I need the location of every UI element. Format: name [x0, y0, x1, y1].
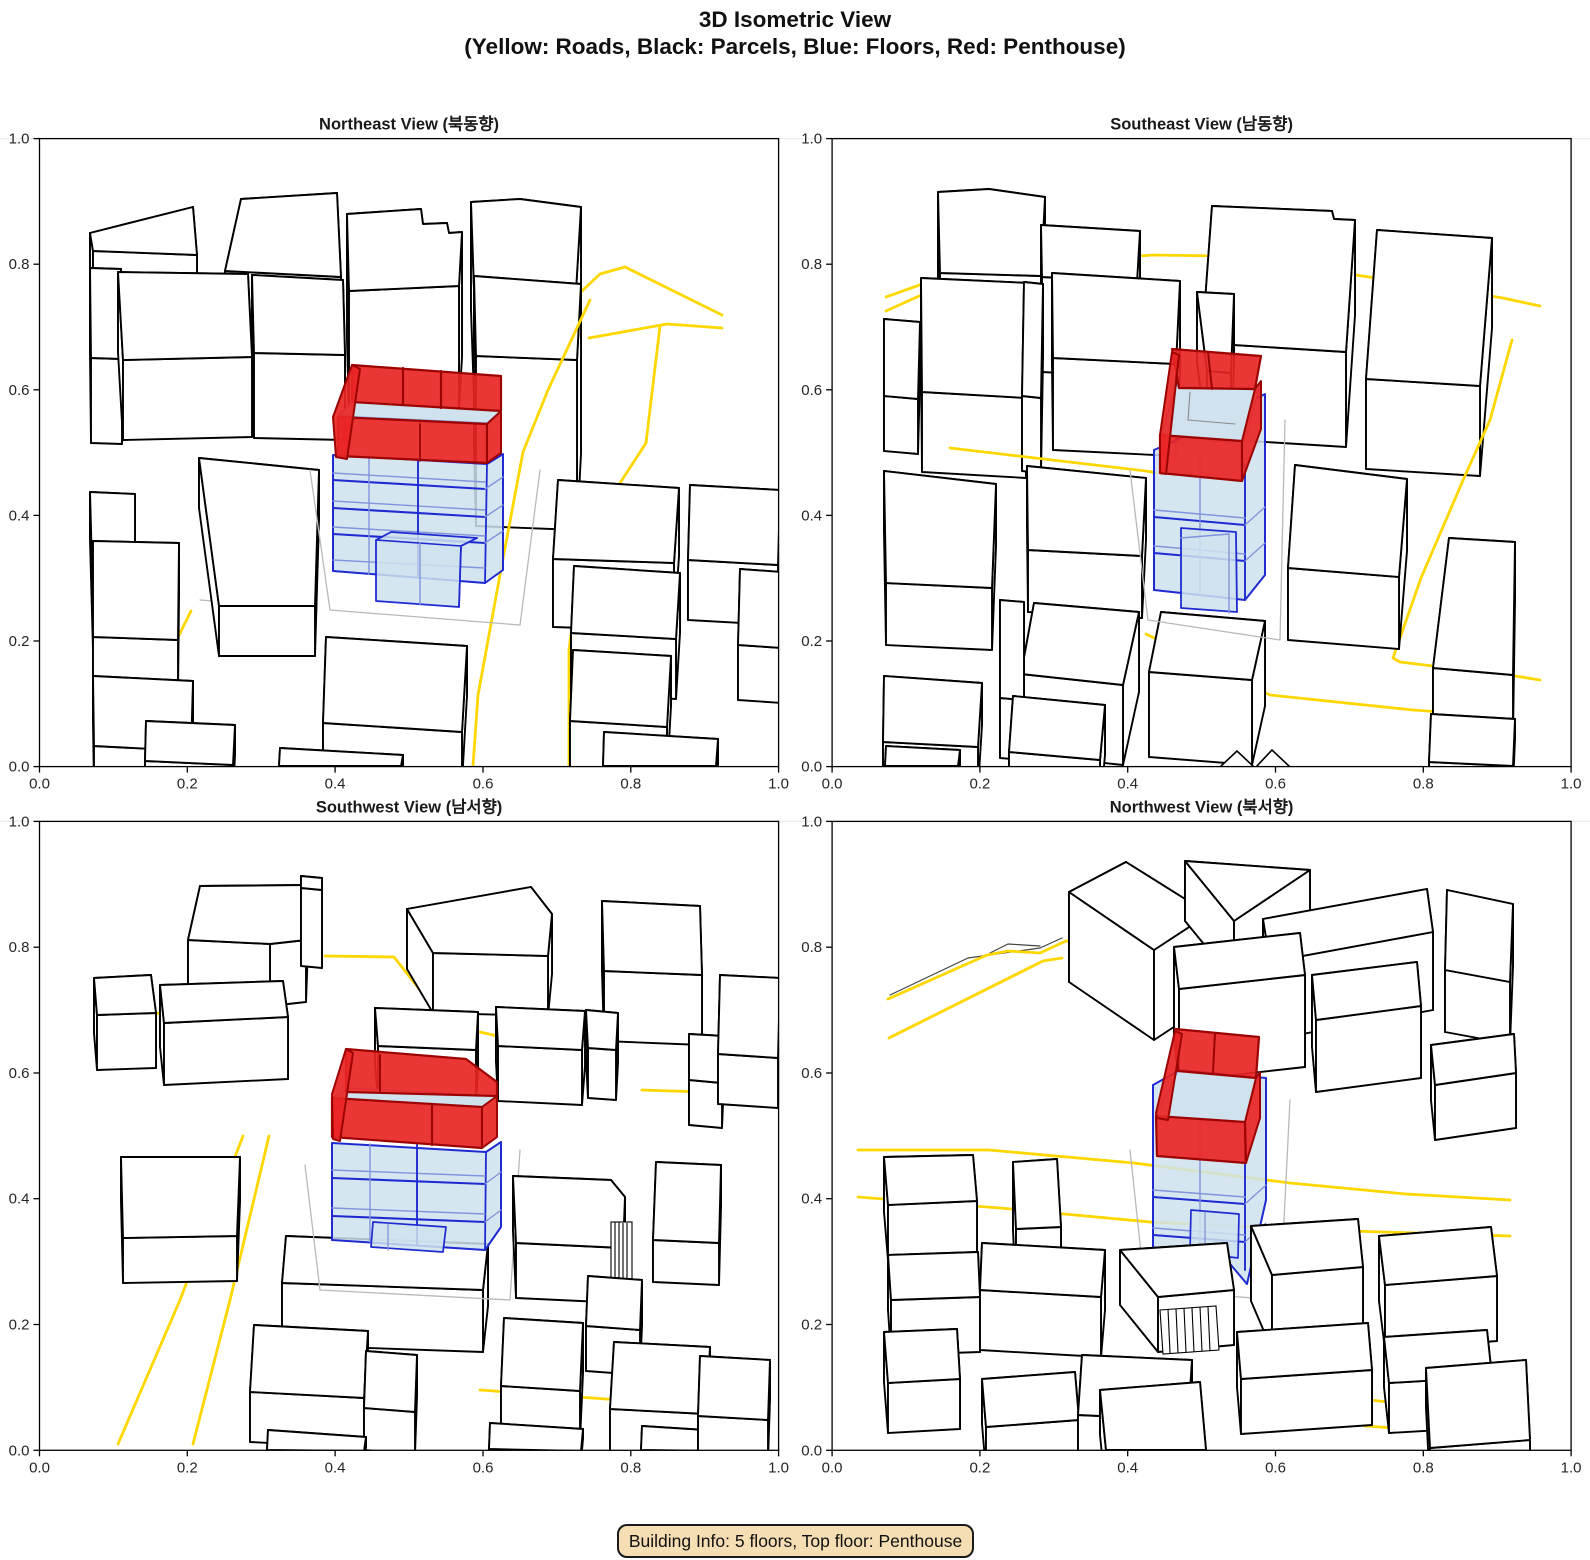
svg-text:Northwest View (북서향): Northwest View (북서향) [1110, 796, 1294, 816]
svg-text:Building Info: 5 floors, Top f: Building Info: 5 floors, Top floor: Pent… [629, 1531, 962, 1551]
svg-text:1.0: 1.0 [1561, 776, 1582, 793]
svg-text:1.0: 1.0 [768, 1459, 789, 1476]
svg-text:0.4: 0.4 [9, 1191, 30, 1208]
svg-text:0.6: 0.6 [801, 382, 822, 399]
svg-text:0.6: 0.6 [801, 1065, 822, 1082]
svg-text:(Yellow: Roads, Black: Parcels: (Yellow: Roads, Black: Parcels, Blue: Fl… [464, 34, 1125, 59]
svg-text:0.2: 0.2 [969, 776, 990, 793]
svg-text:Southeast View (남동향): Southeast View (남동향) [1110, 114, 1293, 134]
svg-text:0.0: 0.0 [822, 1459, 843, 1476]
svg-text:0.8: 0.8 [801, 256, 822, 273]
svg-text:1.0: 1.0 [9, 813, 30, 830]
svg-text:0.2: 0.2 [9, 633, 30, 650]
svg-text:0.2: 0.2 [969, 1459, 990, 1476]
svg-text:0.8: 0.8 [620, 776, 641, 793]
svg-text:0.0: 0.0 [29, 776, 50, 793]
svg-text:Southwest View (남서향): Southwest View (남서향) [316, 796, 502, 816]
svg-text:1.0: 1.0 [768, 776, 789, 793]
svg-text:Northeast View (북동향): Northeast View (북동향) [319, 114, 499, 134]
svg-text:1.0: 1.0 [801, 813, 822, 830]
svg-text:0.2: 0.2 [801, 633, 822, 650]
svg-text:0.4: 0.4 [9, 507, 30, 524]
svg-text:0.4: 0.4 [1117, 776, 1138, 793]
svg-text:0.8: 0.8 [1413, 1459, 1434, 1476]
svg-text:1.0: 1.0 [9, 131, 30, 148]
svg-text:0.6: 0.6 [473, 1459, 494, 1476]
svg-text:0.0: 0.0 [9, 759, 30, 776]
svg-text:0.4: 0.4 [1117, 1459, 1138, 1476]
svg-text:0.6: 0.6 [1265, 1459, 1286, 1476]
svg-text:0.6: 0.6 [9, 382, 30, 399]
svg-text:0.4: 0.4 [325, 1459, 346, 1476]
svg-text:0.2: 0.2 [177, 1459, 198, 1476]
svg-text:1.0: 1.0 [801, 131, 822, 148]
svg-text:0.2: 0.2 [9, 1317, 30, 1334]
svg-text:0.4: 0.4 [801, 507, 822, 524]
svg-text:0.8: 0.8 [1413, 776, 1434, 793]
svg-text:0.4: 0.4 [801, 1191, 822, 1208]
svg-text:0.0: 0.0 [822, 776, 843, 793]
svg-text:0.6: 0.6 [473, 776, 494, 793]
svg-text:0.8: 0.8 [801, 939, 822, 956]
svg-text:0.4: 0.4 [325, 776, 346, 793]
svg-text:0.2: 0.2 [801, 1317, 822, 1334]
svg-text:0.0: 0.0 [29, 1459, 50, 1476]
svg-text:0.6: 0.6 [1265, 776, 1286, 793]
svg-text:0.8: 0.8 [620, 1459, 641, 1476]
svg-text:0.8: 0.8 [9, 256, 30, 273]
svg-text:0.0: 0.0 [801, 1442, 822, 1459]
svg-text:1.0: 1.0 [1561, 1459, 1582, 1476]
svg-text:0.0: 0.0 [9, 1442, 30, 1459]
svg-text:0.8: 0.8 [9, 939, 30, 956]
svg-text:3D Isometric View: 3D Isometric View [699, 7, 892, 32]
svg-text:0.6: 0.6 [9, 1065, 30, 1082]
svg-text:0.2: 0.2 [177, 776, 198, 793]
svg-text:0.0: 0.0 [801, 759, 822, 776]
